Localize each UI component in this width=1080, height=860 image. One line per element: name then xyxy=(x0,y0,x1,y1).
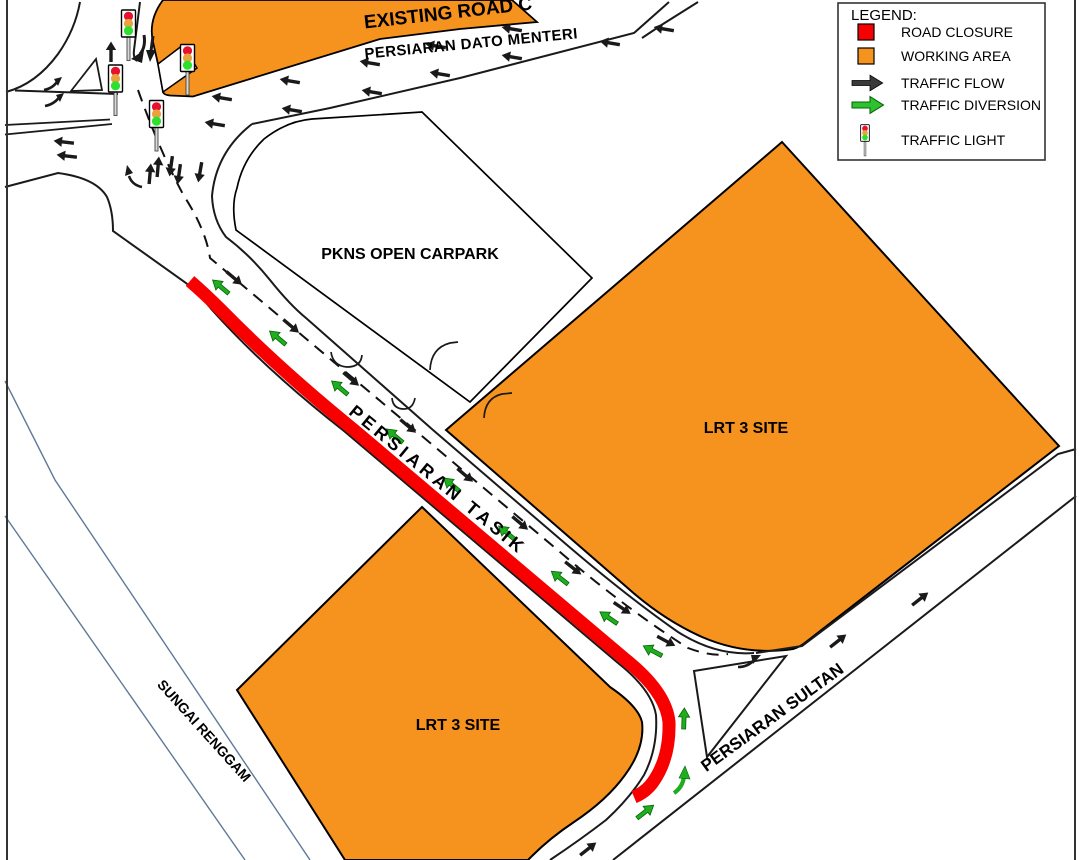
svg-text:LRT 3 SITE: LRT 3 SITE xyxy=(704,420,789,437)
svg-text:LEGEND:: LEGEND: xyxy=(851,7,917,24)
svg-text:WORKING AREA: WORKING AREA xyxy=(901,48,1011,64)
svg-text:LRT 3 SITE: LRT 3 SITE xyxy=(416,717,501,734)
svg-text:TRAFFIC DIVERSION: TRAFFIC DIVERSION xyxy=(901,97,1041,113)
svg-text:ROAD CLOSURE: ROAD CLOSURE xyxy=(901,24,1013,40)
svg-text:TRAFFIC LIGHT: TRAFFIC LIGHT xyxy=(901,132,1006,148)
svg-text:TRAFFIC FLOW: TRAFFIC FLOW xyxy=(901,75,1005,91)
svg-text:PKNS OPEN CARPARK: PKNS OPEN CARPARK xyxy=(321,246,499,263)
